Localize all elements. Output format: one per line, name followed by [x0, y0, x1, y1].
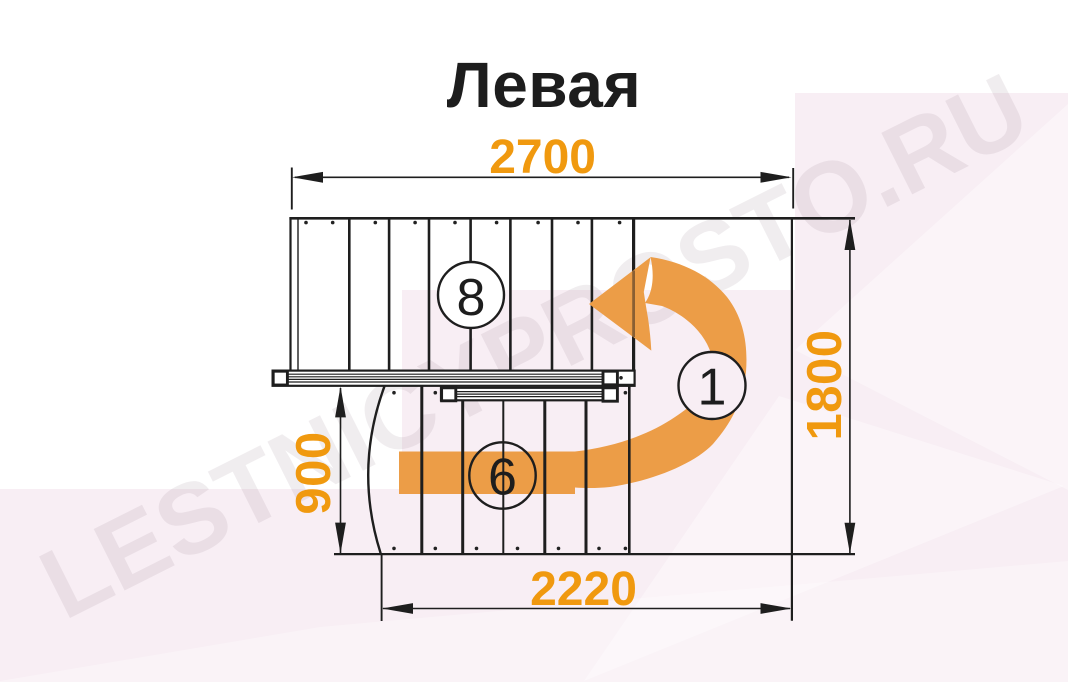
- svg-text:900: 900: [287, 431, 341, 514]
- svg-text:1: 1: [698, 358, 727, 416]
- svg-text:2220: 2220: [530, 563, 637, 616]
- svg-text:Левая: Левая: [447, 49, 641, 121]
- svg-text:2700: 2700: [489, 131, 596, 184]
- svg-text:6: 6: [488, 448, 517, 506]
- svg-text:1800: 1800: [798, 329, 852, 440]
- svg-text:8: 8: [457, 269, 486, 327]
